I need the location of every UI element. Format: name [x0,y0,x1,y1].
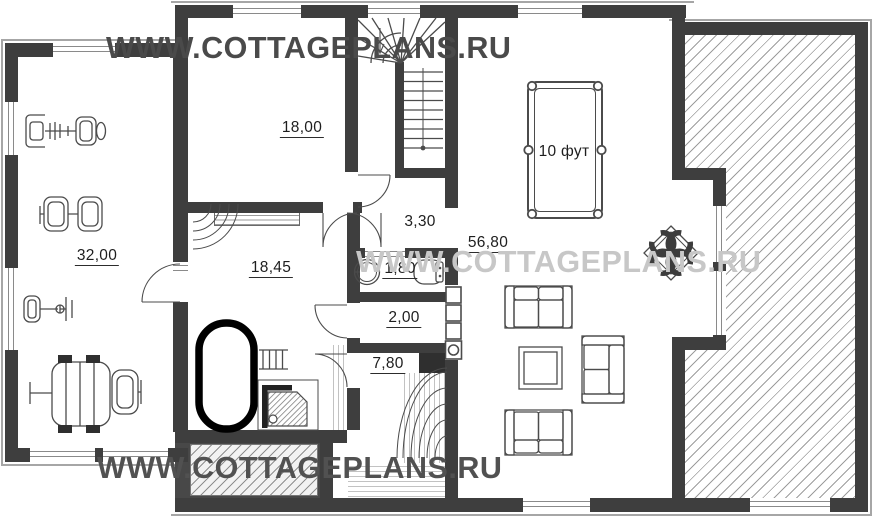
coffee-table [519,347,562,389]
sauna-arch [397,368,447,458]
door-bathroom-right[interactable] [347,213,381,247]
door-gym[interactable] [142,264,180,302]
room-area-label-hall: 3,30 [404,213,435,231]
watermark-middle: WWW.COTTAGEPLANS.RU [356,245,761,280]
sofa-bottom [505,410,572,455]
watermark-top: WWW.COTTAGEPLANS.RU [106,31,511,66]
gym-equipment-bike [24,296,72,322]
heater-column [446,287,462,359]
sofa-right [582,336,624,403]
watermark-bottom: WWW.COTTAGEPLANS.RU [97,451,502,486]
bathtub [199,323,254,429]
gym-equipment-seats [40,197,102,231]
door-bathroom-left[interactable] [323,213,357,247]
room-area-label-bathroom: 18,45 [249,259,293,277]
door-room18[interactable] [358,175,390,207]
gym-equipment-multigym [30,355,141,433]
door-sauna[interactable] [315,354,347,387]
sauna-stove [419,353,445,373]
corner-steps [193,204,238,249]
floor-plan: 32,00 18,00 18,45 3,30 56,80 1,80 2,00 7… [0,0,875,519]
room-area-label-gym: 32,00 [75,247,119,265]
room-area-label-sauna: 7,80 [370,355,405,373]
towel-ladder [259,350,288,369]
billiard-table-label: 10 фут [539,143,590,161]
door-arcs [142,175,390,387]
door-closet[interactable] [315,305,347,338]
gym-equipment-press [26,115,106,147]
room-area-label-closet: 2,00 [386,309,421,327]
room-area-label-room18: 18,00 [280,119,324,137]
shower [258,380,318,430]
sofa-top [505,286,572,328]
